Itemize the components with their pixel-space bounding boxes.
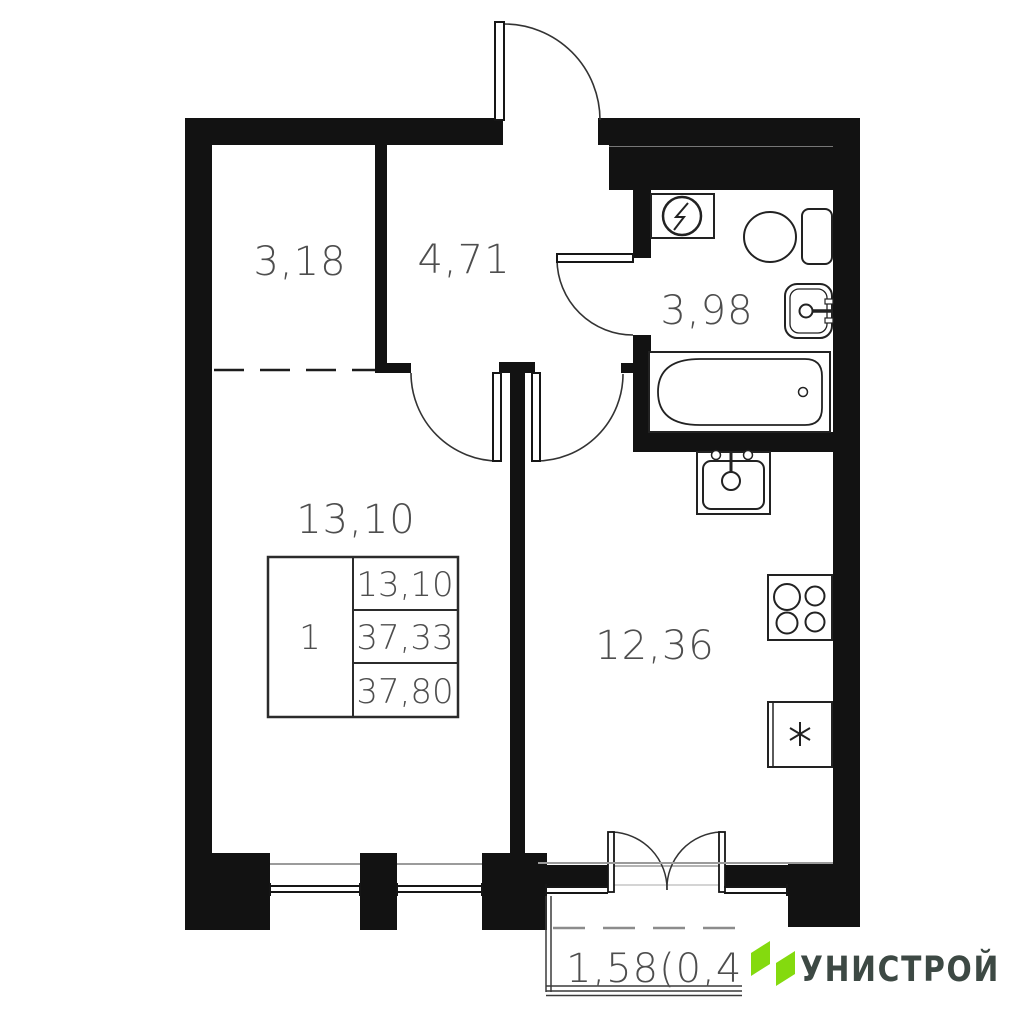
wall-bathroom-top-band xyxy=(609,145,833,190)
toilet-tank xyxy=(802,209,832,264)
wall-top-right xyxy=(598,118,860,145)
living-room-window-1 xyxy=(270,864,360,896)
bathroom-door-leaf xyxy=(557,254,633,262)
wall-bathroom-bottom xyxy=(633,432,833,452)
wall-top-left xyxy=(185,118,503,145)
wall-bottom-pier xyxy=(360,853,397,930)
entrance-door xyxy=(495,22,600,120)
entrance-door-leaf xyxy=(495,22,504,120)
unistroy-logo: УНИСТРОЙ xyxy=(742,935,1024,1010)
living-room-window-2 xyxy=(397,864,482,896)
wall-right xyxy=(833,118,860,870)
living-room-door-arc xyxy=(411,373,499,461)
kitchen-sink-tap xyxy=(722,472,740,490)
wall-bottom-left-block xyxy=(185,853,270,930)
floor-plan: 3,18 4,71 3,98 13,10 12,36 1,58(0,4 1 13… xyxy=(0,0,1024,1024)
balcony-door-right-arc xyxy=(667,832,721,890)
kitchen-door xyxy=(532,373,623,461)
stove-burner xyxy=(806,613,825,632)
bathroom-door-arc xyxy=(557,260,633,335)
wall-kitchen-door-jamb xyxy=(621,363,633,373)
apartment-info-table: 1 13,10 37,33 37,80 xyxy=(268,557,458,717)
washbasin-tap xyxy=(800,305,813,318)
wall-bathroom-left-upper xyxy=(633,188,651,258)
bathtub-icon xyxy=(649,352,830,432)
wardrobe-area-label: 3,18 xyxy=(253,239,346,285)
hallway-area-label: 4,71 xyxy=(417,237,510,283)
bathroom-door xyxy=(557,254,633,335)
washbasin-valve xyxy=(825,318,833,323)
stove-burner xyxy=(777,613,798,634)
wall-bottom-foot-block xyxy=(482,853,547,930)
entrance-door-arc xyxy=(504,24,600,120)
wall-wardrobe-divider xyxy=(375,143,387,363)
table-living-area: 13,10 xyxy=(356,565,453,605)
logo-brand-text: УНИСТРОЙ xyxy=(800,948,1000,990)
stove-burner xyxy=(806,587,825,606)
balcony-area-label: 1,58(0,4 xyxy=(566,946,742,992)
wall-kitchen-south-right xyxy=(724,865,790,886)
table-area-without-balcony: 37,33 xyxy=(356,618,453,658)
living-room-door xyxy=(411,373,501,461)
wall-wardrobe-stub xyxy=(375,363,411,373)
kitchen-area-label: 12,36 xyxy=(595,623,715,669)
kitchen-sink-icon xyxy=(697,451,770,515)
washbasin-icon xyxy=(785,284,833,338)
bathtub-drain xyxy=(799,388,808,397)
wall-hall-divider-stub xyxy=(499,362,535,373)
kitchen-sink-valve xyxy=(712,451,721,460)
balcony-door-left-arc xyxy=(612,832,667,890)
toilet-bowl xyxy=(744,212,796,262)
kitchen-door-arc xyxy=(536,374,623,461)
bathtub-inner xyxy=(658,359,822,425)
stove-icon xyxy=(768,575,832,640)
table-rooms-count: 1 xyxy=(299,618,321,658)
table-total-area: 37,80 xyxy=(356,672,453,712)
floor-plan-page: 3,18 4,71 3,98 13,10 12,36 1,58(0,4 1 13… xyxy=(0,0,1024,1024)
toilet-icon xyxy=(744,209,832,264)
stove-body xyxy=(768,575,832,640)
kitchen-door-leaf xyxy=(532,373,540,461)
kitchen-sink-valve xyxy=(744,451,753,460)
wall-bottom-right-block xyxy=(788,863,860,927)
bathroom-area-label: 3,98 xyxy=(660,288,753,334)
wall-kitchen-south-left xyxy=(545,865,609,886)
living-room-door-leaf xyxy=(493,373,501,461)
stove-burner xyxy=(774,584,800,610)
wall-room-divider xyxy=(510,373,525,853)
washing-machine-icon xyxy=(651,194,714,238)
wall-left xyxy=(185,118,212,930)
fridge-icon xyxy=(768,702,832,767)
fixtures xyxy=(649,194,833,767)
living-room-area-label: 13,10 xyxy=(296,497,416,543)
washbasin-valve xyxy=(825,299,833,304)
